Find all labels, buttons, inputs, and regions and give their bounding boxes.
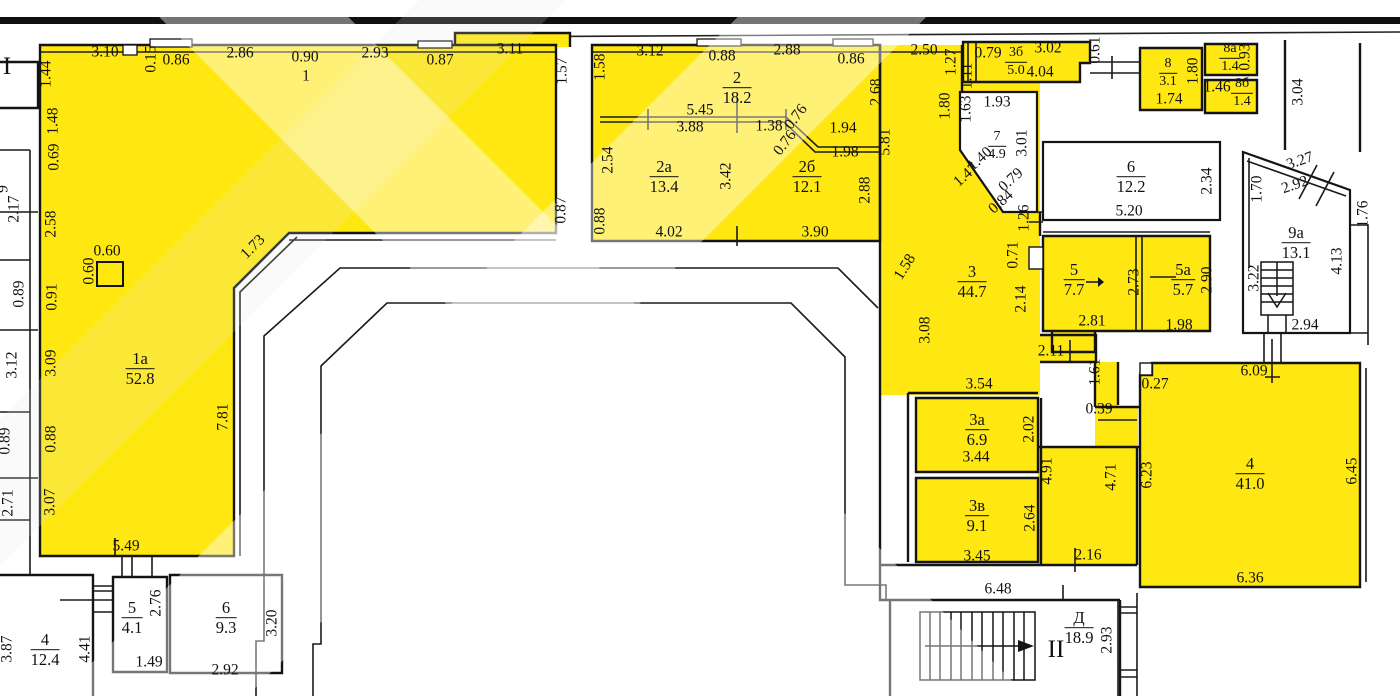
highlighted-rooms <box>40 33 1360 587</box>
corridor-link-2 <box>1095 362 1118 409</box>
sidewalk-line <box>455 32 1400 37</box>
column-0-60 <box>97 262 123 286</box>
room-1a-area <box>40 45 556 556</box>
room-3v-area <box>916 478 1038 562</box>
room-3a-area <box>916 398 1038 472</box>
room-2-area <box>592 45 880 241</box>
staircase-d-icon <box>920 612 1035 680</box>
room-4-area <box>1140 363 1360 587</box>
window-icon <box>418 41 452 48</box>
window-icon <box>697 39 741 46</box>
room-4-notch <box>1140 363 1152 375</box>
window-icon <box>833 39 873 46</box>
window-icon <box>150 39 192 47</box>
wall-notch <box>123 45 137 55</box>
corridor-right-strip <box>1038 447 1137 565</box>
rooms-5-5a-area <box>1043 236 1210 331</box>
floor-plan: 3.100.150.862.860.9012.930.873.111.571.5… <box>0 0 1400 696</box>
room-8a-area <box>1205 44 1257 75</box>
corridor-link-1 <box>1040 335 1096 362</box>
room-8-area <box>1140 48 1202 110</box>
corridor-link-3 <box>1095 407 1138 447</box>
corridor-niche <box>1029 247 1043 269</box>
stairs-direction-arrow <box>1018 640 1034 652</box>
street-boundary-line <box>0 17 1400 24</box>
floor-plan-drawing <box>0 0 1400 696</box>
room-6-area <box>1043 142 1220 220</box>
room-3b-area <box>963 42 1090 82</box>
room-8b-area <box>1205 80 1257 113</box>
